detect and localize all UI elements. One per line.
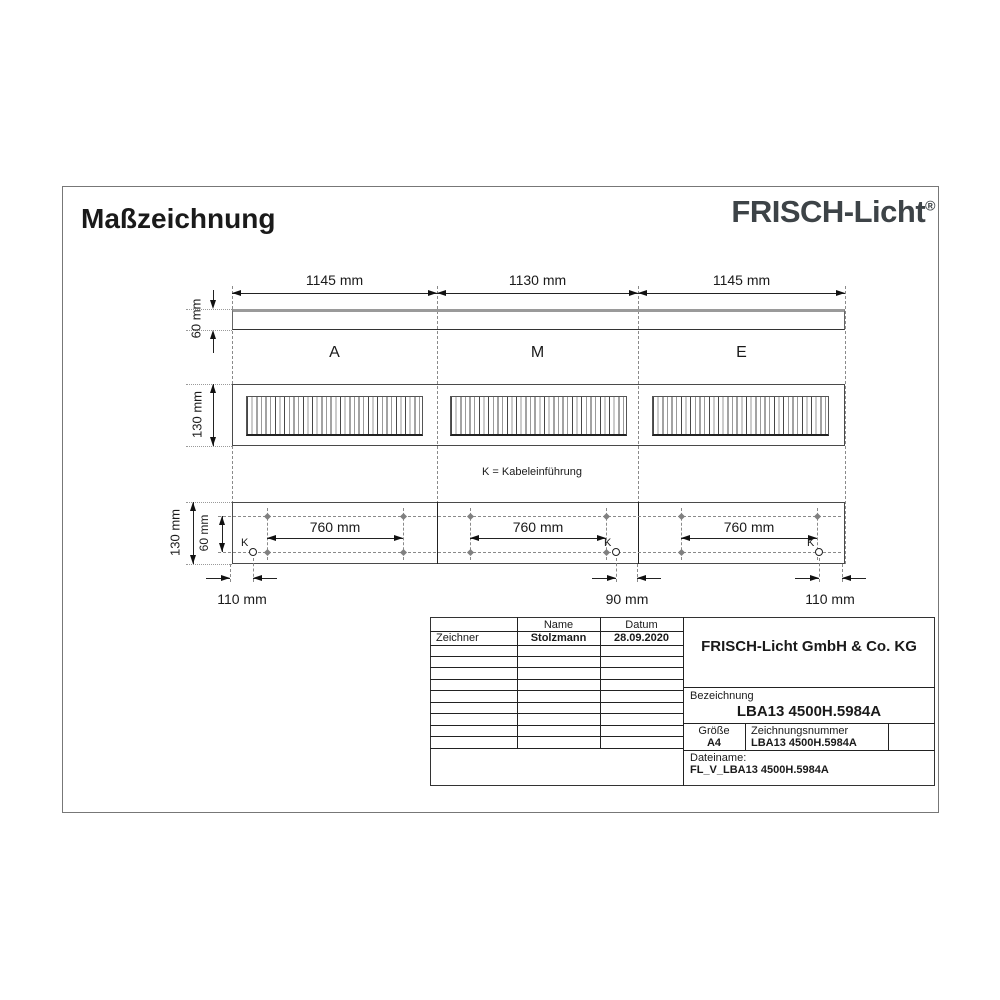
dim-top-2: 1130 mm (437, 272, 638, 288)
leader (186, 446, 232, 447)
dim-offset-3: 110 mm (784, 591, 876, 607)
dim-760-2: 760 mm (470, 519, 606, 535)
k-label-1: K (241, 537, 248, 549)
louver-grid (246, 396, 423, 436)
grid-line (430, 667, 683, 668)
grid-line (430, 702, 683, 703)
arrow (810, 575, 819, 581)
dim-line-760-1 (267, 538, 403, 539)
grid-line (430, 645, 683, 646)
center-line (218, 552, 841, 553)
note-kabeleinfuehrung: K = Kabeleinführung (482, 466, 582, 478)
dim-line (213, 290, 214, 300)
divider (437, 502, 438, 564)
arrow (253, 575, 262, 581)
arrow (267, 535, 276, 541)
k-label-3: K (807, 537, 814, 549)
k-label-2: K (604, 537, 611, 549)
dim-760-3: 760 mm (681, 519, 817, 535)
dim-760-1: 760 mm (267, 519, 403, 535)
grid-line (430, 713, 683, 714)
ext-line (616, 558, 617, 582)
dim-offset-2: 90 mm (581, 591, 673, 607)
groesse-label: Größe (683, 725, 745, 737)
groesse-value: A4 (683, 737, 745, 749)
ext-line (845, 286, 846, 564)
arrow (638, 290, 647, 296)
arrow (437, 290, 446, 296)
arrow (629, 290, 638, 296)
zeichnungsnummer-label: Zeichnungsnummer (751, 725, 848, 737)
dim-front-height: 130 mm (190, 385, 205, 445)
row-name: Stolzmann (517, 632, 600, 644)
section-label-m: M (437, 344, 638, 362)
grid-line (430, 656, 683, 657)
leader (186, 564, 232, 565)
page-title: Maßzeichnung (81, 203, 275, 235)
arrow (210, 330, 216, 339)
louver-grid (652, 396, 829, 436)
arrow (221, 575, 230, 581)
col-header-name: Name (517, 619, 600, 631)
divider (638, 502, 639, 564)
bezeichnung-value: LBA13 4500H.5984A (683, 703, 935, 720)
section-label-a: A (232, 344, 437, 362)
grid-line (430, 736, 683, 737)
k-marker-1 (249, 548, 257, 556)
grid-line (683, 750, 935, 751)
dim-top-3: 1145 mm (638, 272, 845, 288)
dim-bottom-height: 130 mm (168, 503, 183, 563)
brand-logo: FRISCH-Licht® (635, 194, 935, 230)
arrow (842, 575, 851, 581)
arrow (428, 290, 437, 296)
grid-line (430, 690, 683, 691)
k-marker-2 (612, 548, 620, 556)
dim-offset-1: 110 mm (196, 591, 288, 607)
registered-mark: ® (925, 198, 935, 214)
row-datum: 28.09.2020 (600, 632, 683, 644)
arrow (607, 575, 616, 581)
zeichnungsnummer-value: LBA13 4500H.5984A (751, 737, 857, 749)
arrow (470, 535, 479, 541)
dim-line-top (232, 293, 845, 294)
side-view-profile (232, 309, 845, 330)
center-line (218, 516, 841, 517)
dim-line-760-2 (470, 538, 606, 539)
grid-line (683, 723, 935, 724)
grid-line (888, 723, 889, 750)
drawing-sheet: Maßzeichnung FRISCH-Licht® 1145 mm 1130 … (0, 0, 1000, 1000)
arrow (232, 290, 241, 296)
arrow (219, 543, 225, 552)
grid-line (430, 725, 683, 726)
arrow (210, 437, 216, 446)
section-label-e: E (638, 344, 845, 362)
dim-line (213, 339, 214, 353)
grid-line (683, 687, 935, 688)
dim-line-760-3 (681, 538, 817, 539)
dim-top-1: 1145 mm (232, 272, 437, 288)
arrow (681, 535, 690, 541)
arrow (210, 384, 216, 393)
col-header-datum: Datum (600, 619, 683, 631)
arrow (637, 575, 646, 581)
bezeichnung-label: Bezeichnung (690, 690, 754, 702)
brand-text: FRISCH-Licht (731, 194, 925, 229)
arrow (190, 555, 196, 564)
louver-grid (450, 396, 627, 436)
k-marker-3 (815, 548, 823, 556)
arrow (190, 502, 196, 511)
arrow (210, 300, 216, 309)
row-role: Zeichner (436, 632, 479, 644)
arrow (394, 535, 403, 541)
ext-line (819, 558, 820, 582)
dim-bottom-inner-height: 60 mm (197, 503, 211, 563)
dateiname-value: FL_V_LBA13 4500H.5984A (690, 764, 829, 776)
grid-line (430, 748, 683, 749)
dateiname-label: Dateiname: (690, 752, 746, 764)
arrow (836, 290, 845, 296)
grid-line (430, 679, 683, 680)
grid-line (745, 723, 746, 750)
ext-line (230, 564, 231, 582)
arrow (219, 516, 225, 525)
dim-side-height: 60 mm (189, 289, 204, 349)
company-name: FRISCH-Licht GmbH & Co. KG (683, 638, 935, 655)
